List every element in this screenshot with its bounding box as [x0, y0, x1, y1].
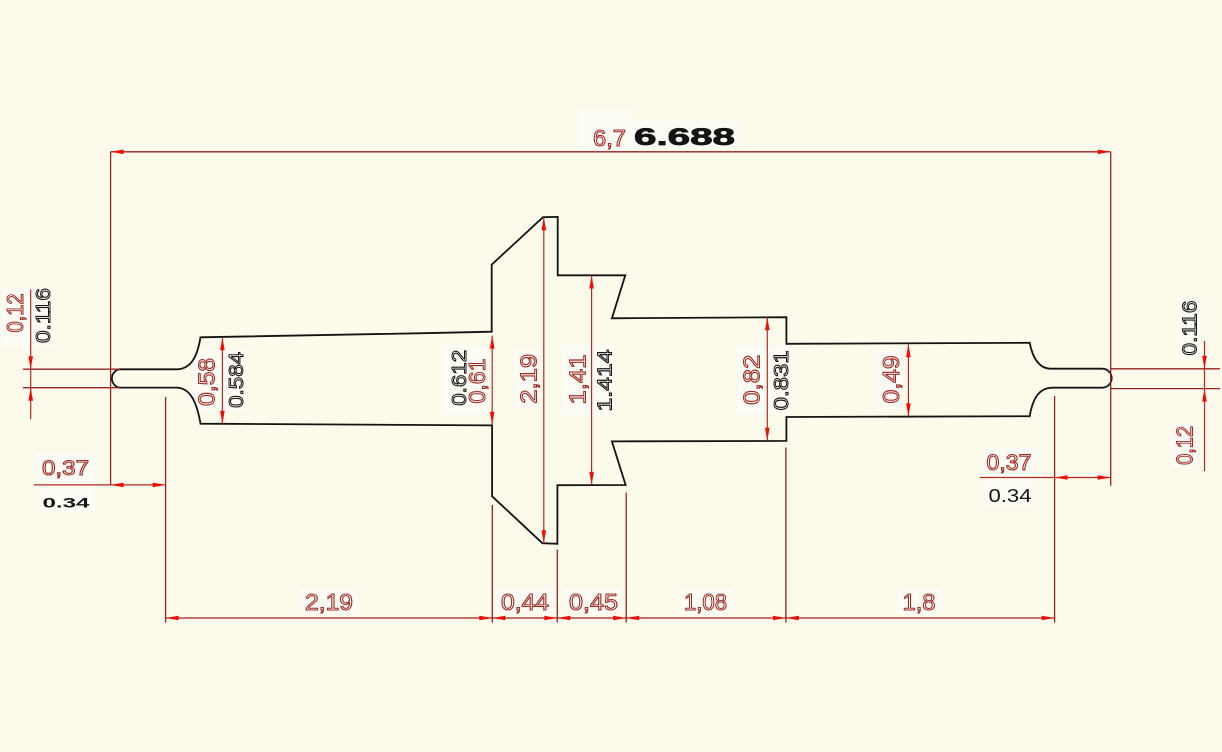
svg-text:1.414: 1.414 — [594, 350, 616, 412]
svg-text:0,61: 0,61 — [464, 359, 490, 404]
svg-text:2,19: 2,19 — [305, 589, 353, 615]
svg-text:0,12: 0,12 — [1172, 426, 1198, 465]
svg-text:1,41: 1,41 — [565, 355, 591, 405]
svg-text:0.34: 0.34 — [989, 485, 1032, 506]
svg-text:0.116: 0.116 — [33, 288, 55, 343]
svg-text:6,7: 6,7 — [593, 125, 626, 151]
svg-text:0,37: 0,37 — [987, 450, 1032, 475]
svg-text:0.116: 0.116 — [1180, 301, 1202, 356]
svg-text:6.688: 6.688 — [634, 124, 735, 151]
svg-text:2,19: 2,19 — [516, 354, 542, 404]
svg-text:0,44: 0,44 — [501, 589, 549, 615]
svg-text:0.34: 0.34 — [43, 496, 91, 511]
svg-text:1,08: 1,08 — [684, 589, 727, 615]
svg-text:0,45: 0,45 — [569, 589, 618, 615]
svg-text:0,12: 0,12 — [2, 294, 28, 333]
svg-text:0.831: 0.831 — [771, 350, 793, 410]
svg-text:0,58: 0,58 — [194, 358, 220, 406]
svg-text:0,49: 0,49 — [878, 355, 904, 403]
svg-text:0,37: 0,37 — [42, 457, 89, 480]
svg-text:1,8: 1,8 — [903, 589, 936, 615]
svg-text:0,82: 0,82 — [739, 355, 765, 405]
svg-text:0.584: 0.584 — [226, 352, 248, 408]
